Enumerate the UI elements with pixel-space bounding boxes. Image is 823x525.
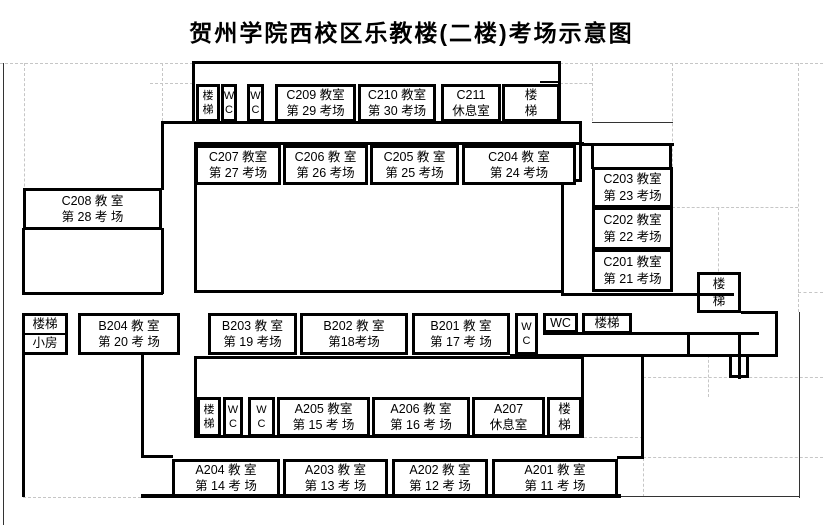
gridline xyxy=(643,458,644,497)
room-A203: A203 教 室第 13 考 场 xyxy=(283,459,388,497)
room-label: 第 23 考场 xyxy=(603,188,661,204)
room-label: 第 22 考场 xyxy=(603,229,661,245)
room-label: 楼 xyxy=(713,276,726,292)
room-label: C201 教室 xyxy=(603,254,661,270)
room-label: 第 14 考 场 xyxy=(195,478,257,494)
room-label: 休息室 xyxy=(452,103,490,119)
room-label: A203 教 室 xyxy=(305,462,366,478)
room-label: 第 19 考场 xyxy=(223,334,281,350)
room-label: B203 教 室 xyxy=(222,318,283,334)
room-label: C210 教室 xyxy=(368,87,426,103)
room-label: W xyxy=(224,89,234,103)
room-label: 休息室 xyxy=(490,417,528,433)
wall xyxy=(579,121,582,182)
wall xyxy=(580,143,674,146)
room-label: 第 27 考场 xyxy=(209,165,267,181)
room-A202: A202 教 室第 12 考 场 xyxy=(392,459,488,497)
room-B204: B204 教 室第 20 考 场 xyxy=(78,313,180,355)
wall xyxy=(591,143,594,169)
thin-border-line xyxy=(592,122,673,123)
room-label: 第18考场 xyxy=(328,334,379,350)
room-label: 梯 xyxy=(525,103,538,119)
room-C204: C204 教 室第 24 考场 xyxy=(462,145,576,185)
room-label: 第 30 考场 xyxy=(368,103,426,119)
room-label: 第 17 考 场 xyxy=(430,334,492,350)
room-A206: A206 教 室第 16 考 场 xyxy=(372,397,470,437)
room-B202: B202 教 室第18考场 xyxy=(300,313,408,355)
room-label: B201 教 室 xyxy=(430,318,491,334)
room-label: C208 教 室 xyxy=(62,193,124,209)
room-label: B204 教 室 xyxy=(98,318,159,334)
room-label: C xyxy=(225,103,233,117)
gridline xyxy=(162,63,163,121)
wall xyxy=(161,228,164,294)
room-label: C xyxy=(252,103,260,117)
wall xyxy=(141,354,144,458)
room-label: W xyxy=(250,89,260,103)
room-label: 第 25 考场 xyxy=(385,165,443,181)
room-sw_wc2: WC xyxy=(248,397,275,437)
room-label: C205 教 室 xyxy=(384,149,446,165)
room-label: W xyxy=(256,403,266,417)
room-label: C203 教室 xyxy=(603,171,661,187)
room-label: A206 教 室 xyxy=(390,401,451,417)
gridline xyxy=(0,63,193,64)
wall xyxy=(161,121,164,190)
wall xyxy=(540,81,559,83)
room-w_split: 楼梯小房 xyxy=(22,313,68,355)
room-A205: A205 教室第 15 考 场 xyxy=(277,397,370,437)
gridline xyxy=(592,63,593,121)
room-label: 第 12 考 场 xyxy=(409,478,471,494)
room-label: C206 教 室 xyxy=(295,149,357,165)
room-label: A202 教 室 xyxy=(409,462,470,478)
room-C211: C211休息室 xyxy=(441,84,501,122)
room-label: 第 26 考场 xyxy=(296,165,354,181)
wall xyxy=(645,293,734,296)
room-label: 楼梯 xyxy=(25,316,65,333)
room-C202: C202 教室第 22 考场 xyxy=(592,207,673,250)
room-sw_wc1: WC xyxy=(223,397,243,437)
wall xyxy=(192,61,195,124)
room-label: 第 20 考 场 xyxy=(98,334,160,350)
room-mid_wc_tall: WC xyxy=(515,313,538,355)
gridline xyxy=(560,63,823,64)
wall xyxy=(741,311,778,314)
room-label: C xyxy=(523,334,531,348)
room-label: A205 教室 xyxy=(295,401,353,417)
wall xyxy=(22,292,163,295)
room-label: 楼 xyxy=(525,87,538,103)
room-B203: B203 教 室第 19 考场 xyxy=(208,313,297,355)
room-label: 楼 xyxy=(558,401,571,417)
room-label: 小房 xyxy=(25,333,65,352)
room-A201: A201 教 室第 11 考 场 xyxy=(492,459,618,497)
room-label: C209 教室 xyxy=(286,87,344,103)
room-label: 第 29 考场 xyxy=(286,103,344,119)
gridline xyxy=(643,457,823,458)
gridline xyxy=(798,63,799,312)
room-label: B202 教 室 xyxy=(323,318,384,334)
floor-plan: 贺州学院西校区乐教楼(二楼)考场示意图 楼梯WCWCC209 教室第 29 考场… xyxy=(0,0,823,525)
wall xyxy=(22,228,25,294)
room-C203: C203 教室第 23 考场 xyxy=(592,167,673,208)
room-C206: C206 教 室第 26 考场 xyxy=(283,145,368,185)
room-se_stairs: 楼梯 xyxy=(547,397,582,437)
gridline xyxy=(798,292,823,293)
wall xyxy=(561,179,564,293)
wall xyxy=(641,354,644,459)
room-label: C xyxy=(229,417,237,431)
room-label: 梯 xyxy=(558,417,571,433)
gridline xyxy=(672,207,798,208)
room-label: C202 教室 xyxy=(603,212,661,228)
gridline xyxy=(708,355,709,397)
room-nw_wc2: WC xyxy=(247,84,264,122)
room-label: 楼 xyxy=(204,403,215,417)
room-label: C204 教 室 xyxy=(488,149,550,165)
room-label: 第 16 考 场 xyxy=(390,417,452,433)
wall xyxy=(141,455,173,458)
room-C207: C207 教室第 27 考场 xyxy=(195,145,281,185)
wall xyxy=(193,61,561,64)
room-label: 第 13 考 场 xyxy=(305,478,367,494)
thin-border-line xyxy=(799,312,800,498)
room-label: A204 教 室 xyxy=(195,462,256,478)
room-mid_stairs: 楼梯 xyxy=(582,313,632,334)
room-label: 第 11 考 场 xyxy=(525,478,586,494)
gridline xyxy=(23,497,141,498)
room-A204: A204 教 室第 14 考 场 xyxy=(172,459,280,497)
wall xyxy=(669,143,672,169)
page-title: 贺州学院西校区乐教楼(二楼)考场示意图 xyxy=(0,14,823,48)
room-C210: C210 教室第 30 考场 xyxy=(358,84,436,122)
room-B201: B201 教 室第 17 考 场 xyxy=(412,313,510,355)
room-ne_stairs: 楼梯 xyxy=(502,84,560,122)
room-label: C xyxy=(258,417,266,431)
room-label: C207 教室 xyxy=(209,149,267,165)
room-label: 楼 xyxy=(203,89,214,103)
room-label: 梯 xyxy=(203,103,214,117)
room-nw_stairs: 楼梯 xyxy=(196,84,220,122)
thin-border-line xyxy=(620,496,800,497)
wall xyxy=(22,354,25,497)
room-label: C211 xyxy=(457,87,486,103)
room-label: WC xyxy=(550,315,571,331)
gridline xyxy=(150,83,193,84)
room-C201: C201 教室第 21 考场 xyxy=(592,249,673,292)
room-label: W xyxy=(228,403,238,417)
room-label: 第 21 考场 xyxy=(603,271,661,287)
room-label: W xyxy=(521,320,531,334)
room-C209: C209 教室第 29 考场 xyxy=(275,84,356,122)
room-A207: A207休息室 xyxy=(472,397,545,437)
wall xyxy=(194,290,564,293)
room-label: A207 xyxy=(494,401,523,417)
room-label: 楼梯 xyxy=(594,315,619,331)
room-label: 梯 xyxy=(204,417,215,431)
room-label: 第 24 考场 xyxy=(490,165,548,181)
room-label: 第 28 考 场 xyxy=(62,209,124,225)
room-C205: C205 教 室第 25 考场 xyxy=(370,145,459,185)
room-nw_wc1: WC xyxy=(221,84,237,122)
room-sw_stairs: 楼梯 xyxy=(197,397,221,437)
room-label: 第 15 考 场 xyxy=(293,417,355,433)
room-mid_wc: WC xyxy=(543,313,578,333)
thin-border-line xyxy=(3,63,4,525)
gridline xyxy=(560,83,592,84)
gridline xyxy=(584,437,643,438)
room-C208: C208 教 室第 28 考 场 xyxy=(23,188,162,230)
room-label: A201 教 室 xyxy=(524,462,585,478)
wall xyxy=(775,311,778,357)
wall xyxy=(617,456,644,459)
